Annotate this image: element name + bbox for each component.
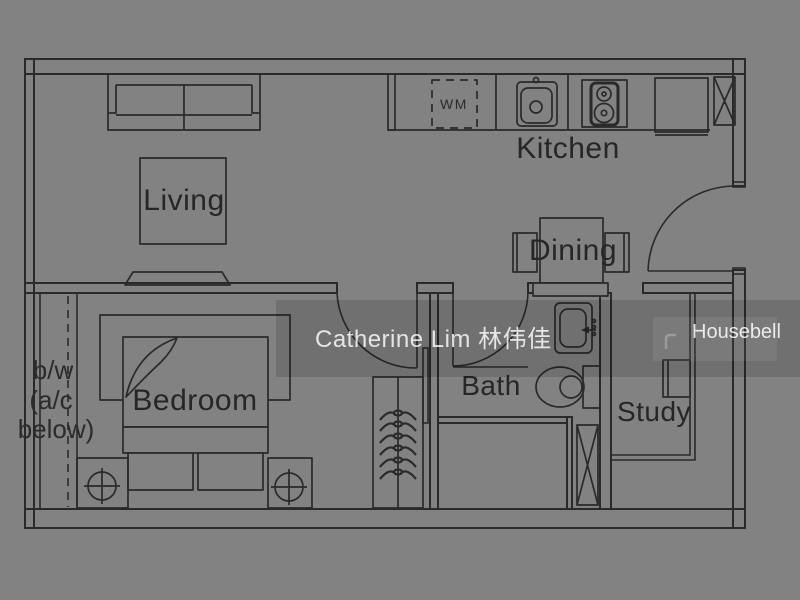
bath-shaft-icon	[577, 425, 598, 505]
floor-plan-svg: Living Kitchen Dining Bedroom Bath Study…	[0, 0, 800, 600]
room-label-study: Study	[617, 396, 691, 427]
watermark-agent-name: Catherine Lim 林伟佳	[315, 326, 552, 353]
lamp-icon-left	[84, 468, 120, 504]
wardrobe-icon	[373, 377, 423, 508]
bay-window-label: b/w (a/c below)	[18, 355, 95, 444]
hanger-icons	[380, 411, 416, 480]
bay-window-label-line3: below)	[18, 414, 95, 444]
entrance-door-swing	[648, 186, 736, 271]
wall-bottom	[25, 509, 745, 528]
wall-bath-bottom	[438, 417, 567, 423]
kitchen-counter-endcap	[388, 74, 395, 130]
wall-store	[567, 417, 572, 509]
watermark: Catherine Lim 林伟佳 Housebell	[276, 300, 800, 377]
watermark-brand-name: Housebell	[692, 321, 781, 343]
wall-study-top	[643, 283, 733, 293]
wall-divider-b	[417, 283, 453, 293]
room-labels: Living Kitchen Dining Bedroom Bath Study…	[18, 96, 691, 444]
room-label-bedroom: Bedroom	[132, 384, 257, 417]
room-label-living: Living	[143, 184, 224, 217]
lamp-icon-right	[271, 469, 307, 505]
sofa-icon	[108, 75, 260, 130]
pillow-left	[128, 453, 193, 490]
pillow-right	[198, 453, 263, 490]
living-furniture	[108, 75, 260, 285]
kitchen-shaft-icon	[714, 77, 735, 125]
bay-window-label-line1: b/w	[33, 355, 74, 385]
room-label-dining: Dining	[529, 234, 617, 267]
dining-sideboard-icon	[533, 283, 608, 296]
bed-sheet-band	[123, 427, 268, 453]
sink-icon	[517, 78, 557, 127]
washing-machine-label: WM	[440, 96, 468, 112]
room-label-kitchen: Kitchen	[516, 132, 620, 165]
stove-icon	[582, 80, 627, 127]
wall-top	[25, 59, 745, 74]
floor-plan-image: Living Kitchen Dining Bedroom Bath Study…	[0, 0, 800, 600]
kitchen-cabinet	[655, 78, 708, 132]
bay-window-label-line2: (a/c	[29, 385, 72, 415]
